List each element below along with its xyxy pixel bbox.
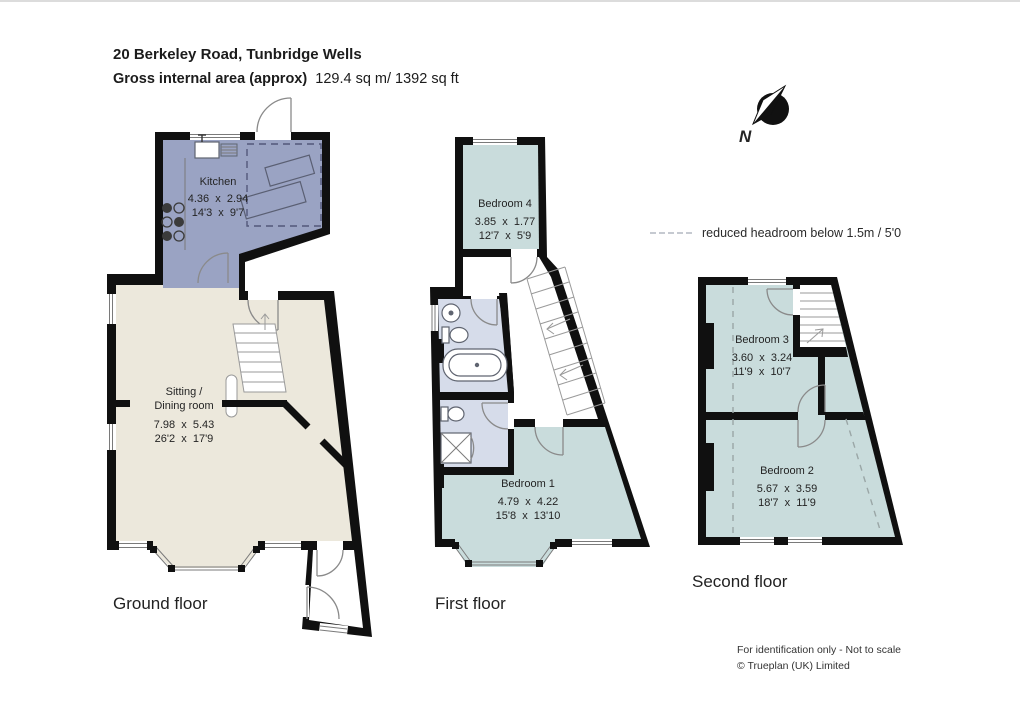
bathtub-icon: [443, 349, 507, 381]
bedroom2-name-label: Bedroom 2: [760, 465, 814, 477]
bedroom1-name-label: Bedroom 1: [501, 478, 555, 490]
bedroom2-metric-dimensions: 5.67 x 3.59: [757, 483, 818, 495]
bedroom4-imperial-dimensions: 12'7 x 5'9: [479, 230, 532, 242]
legend-label: reduced headroom below 1.5m / 5'0: [702, 226, 901, 240]
ground-floor-plan: Kitchen 4.36 x 2.94 14'3 x 9'7 Sitting /…: [95, 62, 395, 652]
dividing-wall: [706, 412, 798, 420]
floor-label-ground: Ground floor: [113, 594, 208, 614]
shower-icon: [441, 433, 474, 463]
footer: For identification only - Not to scale ©…: [737, 642, 901, 674]
bedroom3-imperial-dimensions: 11'9 x 10'7: [733, 366, 791, 378]
stair-wall-bottom: [793, 347, 848, 357]
floorplan-page: 20 Berkeley Road, Tunbridge Wells Gross …: [0, 0, 1020, 721]
legend: reduced headroom below 1.5m / 5'0: [650, 226, 901, 240]
sitting-imperial-dimensions: 26'2 x 17'9: [155, 433, 214, 445]
kitchen-metric-dimensions: 4.36 x 2.94: [188, 193, 249, 205]
chimney-breast: [435, 464, 444, 488]
footer-copyright: © Trueplan (UK) Limited: [737, 658, 901, 674]
kitchen-name-label: Kitchen: [200, 176, 237, 188]
bedroom3-metric-dimensions: 3.60 x 3.24: [732, 352, 793, 364]
bedroom3-name-label: Bedroom 3: [735, 334, 789, 346]
floor-label-first: First floor: [435, 594, 506, 614]
footer-disclaimer: For identification only - Not to scale: [737, 642, 901, 658]
sitting-name-line2: Dining room: [154, 400, 213, 412]
bathroom-wc-wall: [438, 392, 514, 400]
basin-icon: [442, 304, 460, 322]
toilet-icon: [442, 327, 468, 343]
exterior-door: [255, 98, 291, 140]
second-floor-plan: Bedroom 3 3.60 x 3.24 11'9 x 10'7 Bedroo…: [685, 267, 925, 587]
wc-bottom-wall: [435, 467, 514, 475]
sitting-name-line1: Sitting /: [166, 386, 204, 398]
chimney-breast: [706, 323, 714, 369]
compass-icon: N: [733, 80, 813, 150]
bedroom1-imperial-dimensions: 15'8 x 13'10: [496, 510, 561, 522]
floor-label-second: Second floor: [692, 572, 787, 592]
sitting-metric-dimensions: 7.98 x 5.43: [154, 419, 215, 431]
bedroom2-imperial-dimensions: 18'7 x 11'9: [758, 497, 816, 509]
north-label: N: [739, 127, 752, 146]
page-title: 20 Berkeley Road, Tunbridge Wells: [113, 46, 362, 63]
bedroom4-metric-dimensions: 3.85 x 1.77: [475, 216, 536, 228]
dividing-wall-right: [825, 412, 866, 420]
chimney-breast: [116, 400, 130, 407]
chimney-breast: [706, 443, 714, 491]
bedroom4-name-label: Bedroom 4: [478, 198, 532, 210]
interior-wall: [222, 400, 287, 407]
first-floor-plan: Bedroom 4 3.85 x 1.77 12'7 x 5'9 Bedroom…: [415, 127, 665, 622]
kitchen-imperial-dimensions: 14'3 x 9'7: [192, 207, 245, 219]
bedroom1-metric-dimensions: 4.79 x 4.22: [498, 496, 559, 508]
wc-toilet-icon: [441, 407, 464, 421]
